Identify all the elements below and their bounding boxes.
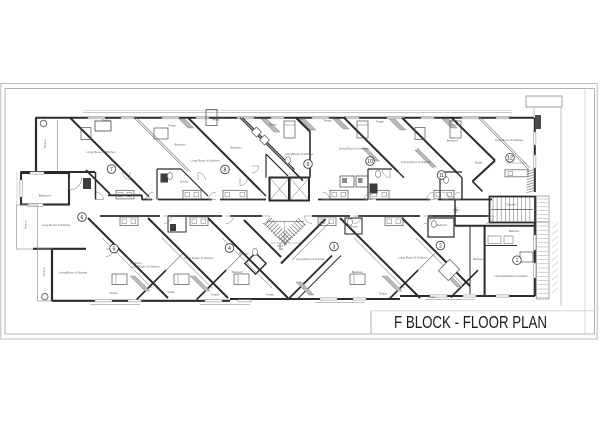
svg-text:Terace: Terace [109, 291, 118, 295]
svg-text:Long Room & Kitchen: Long Room & Kitchen [398, 256, 428, 260]
svg-text:Bedroom: Bedroom [39, 194, 52, 198]
svg-text:11: 11 [439, 173, 444, 179]
svg-text:Terace: Terace [168, 124, 176, 128]
svg-text:Terace: Terace [376, 120, 384, 124]
svg-text:Ensuite: Ensuite [180, 181, 189, 184]
svg-text:Bedroom: Bedroom [174, 143, 186, 147]
svg-text:Terace: Terace [269, 123, 277, 127]
svg-text:Terace: Terace [212, 118, 220, 122]
svg-text:1: 1 [516, 258, 519, 264]
svg-text:9: 9 [307, 162, 310, 168]
svg-text:Stairwell: Stairwell [506, 204, 516, 207]
svg-text:5: 5 [113, 246, 116, 252]
svg-text:Bedroom: Bedroom [131, 261, 143, 265]
svg-text:Long Room & Kitchen: Long Room & Kitchen [296, 257, 326, 261]
svg-text:Laundry/bedroom & Kitchen: Laundry/bedroom & Kitchen [494, 274, 528, 278]
svg-text:6: 6 [81, 215, 84, 221]
svg-text:Bedroom: Bedroom [230, 146, 242, 150]
svg-text:3: 3 [333, 244, 336, 250]
svg-text:Terace: Terace [102, 118, 111, 122]
svg-text:2: 2 [439, 243, 442, 249]
svg-text:7: 7 [110, 167, 113, 173]
svg-text:Bedroom: Bedroom [232, 270, 244, 274]
svg-text:Terace: Terace [428, 295, 436, 299]
svg-text:Bedroom: Bedroom [473, 257, 485, 261]
svg-text:Terace: Terace [43, 139, 47, 148]
svg-text:Terace: Terace [324, 118, 332, 122]
svg-text:Bathroom: Bathroom [437, 224, 447, 227]
svg-text:Terace: Terace [42, 267, 46, 276]
svg-text:Bedroom: Bedroom [352, 270, 364, 274]
svg-text:Long Room & Kitchen: Long Room & Kitchen [184, 256, 214, 260]
svg-text:Terace: Terace [167, 290, 175, 294]
svg-text:Long Room & Kitchen: Long Room & Kitchen [42, 223, 71, 227]
svg-text:Long Room & Kitchen: Long Room & Kitchen [190, 159, 220, 163]
svg-text:LivingRoom & Kitchen: LivingRoom & Kitchen [285, 152, 314, 156]
svg-text:Long Room & Kitchen: Long Room & Kitchen [86, 150, 116, 154]
svg-text:Living Room & Kitchen: Living Room & Kitchen [401, 160, 432, 164]
svg-text:Long Room & Kitchen: Long Room & Kitchen [130, 265, 160, 269]
svg-text:Long Room & Kitchen: Long Room & Kitchen [495, 138, 524, 142]
svg-text:12: 12 [507, 156, 513, 162]
svg-text:4: 4 [228, 246, 231, 252]
svg-text:Living Room & Kitchen: Living Room & Kitchen [339, 147, 370, 151]
svg-text:10: 10 [367, 159, 373, 165]
svg-text:Terace: Terace [266, 293, 274, 297]
svg-text:Terace: Terace [379, 292, 388, 296]
svg-text:Ensuite: Ensuite [475, 161, 483, 164]
svg-text:Terace: Terace [211, 293, 220, 297]
svg-text:8: 8 [224, 167, 227, 173]
svg-text:LivingRoom & Kitchen: LivingRoom & Kitchen [59, 271, 88, 275]
svg-text:Bathroom: Bathroom [509, 230, 519, 233]
svg-text:Bathroom: Bathroom [348, 226, 358, 229]
svg-text:Terace: Terace [483, 294, 492, 298]
svg-text:F BLOCK - FLOOR PLAN: F BLOCK - FLOOR PLAN [394, 312, 547, 332]
svg-text:Bedroom: Bedroom [447, 139, 459, 143]
svg-text:Hall: Hall [279, 247, 284, 251]
svg-text:Terace: Terace [449, 118, 457, 122]
svg-text:Terace: Terace [24, 220, 28, 229]
